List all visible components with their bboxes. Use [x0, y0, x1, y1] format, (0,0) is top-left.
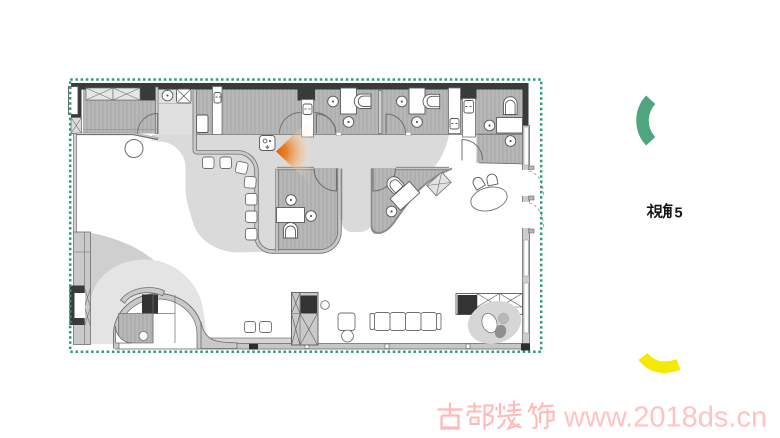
svg-text:5: 5 — [675, 206, 683, 222]
svg-text:www.2018ds.cn: www.2018ds.cn — [563, 402, 767, 434]
